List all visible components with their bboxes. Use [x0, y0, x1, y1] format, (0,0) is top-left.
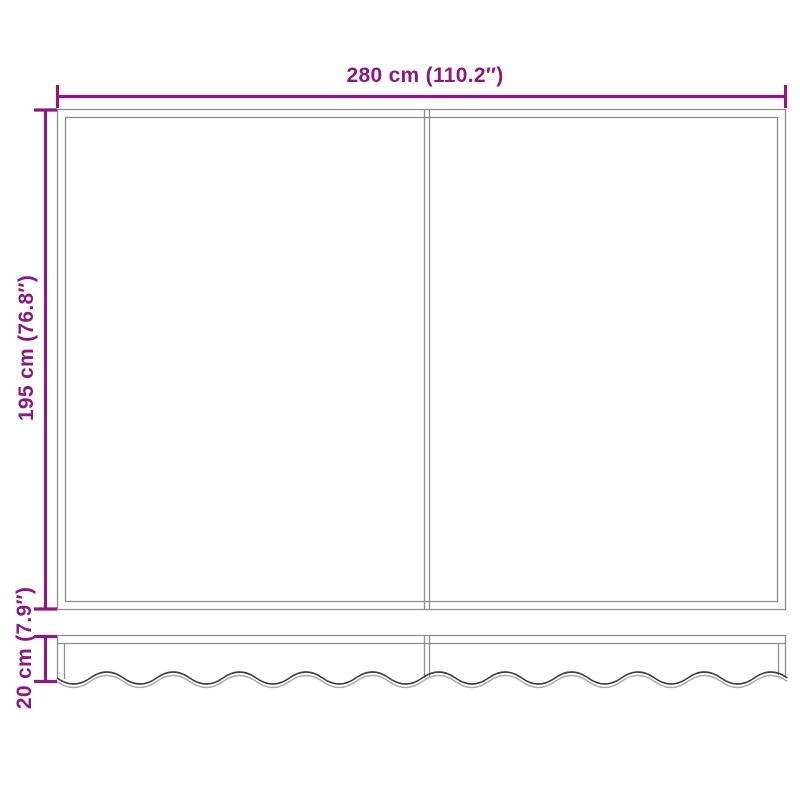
valance-height-dimension-label: 20 cm (7.9″): [13, 587, 36, 709]
awning-dimension-diagram: 280 cm (110.2″) 195 cm (76.8″) 20 cm (7.…: [0, 0, 800, 800]
fabric-outline-group: [57, 110, 786, 680]
dimension-lines-group: [34, 85, 786, 683]
width-dimension-label: 280 cm (110.2″): [347, 64, 504, 87]
dimension-diagram-canvas: 280 cm (110.2″) 195 cm (76.8″) 20 cm (7.…: [0, 0, 800, 800]
fabric-panel-inner-outline: [66, 118, 778, 602]
fabric-panel-outer-outline: [58, 110, 786, 610]
height-dimension-label: 195 cm (76.8″): [15, 275, 38, 421]
